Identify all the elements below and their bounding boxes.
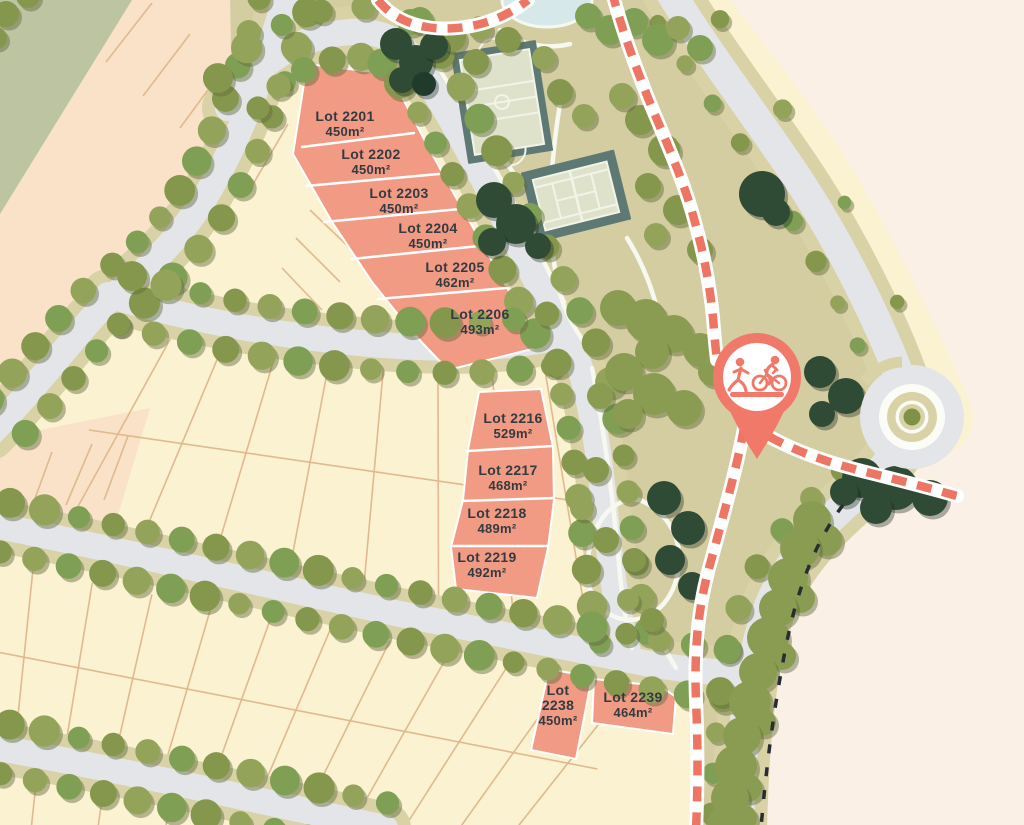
lot-label: Lot 2206 — [450, 306, 509, 322]
lot-label: 450m² — [379, 201, 418, 216]
lot-label: Lot 2204 — [398, 220, 457, 236]
lot-label: 529m² — [493, 426, 532, 441]
lot-label: 492m² — [467, 565, 506, 580]
lot-label: Lot 2218 — [467, 505, 526, 521]
lot-label: 489m² — [477, 521, 516, 536]
lot-label: 450m² — [538, 713, 577, 728]
masterplan-svg: Lot 2201450m²Lot 2202450m²Lot 2203450m²L… — [0, 0, 1024, 825]
lot-label: 450m² — [351, 162, 390, 177]
lot-label: 468m² — [488, 478, 527, 493]
lot-label: Lot — [547, 682, 570, 698]
lot-label: 450m² — [325, 124, 364, 139]
lot-label: 462m² — [435, 275, 474, 290]
lot-label: 2238 — [542, 697, 574, 713]
lot-label: 493m² — [460, 322, 499, 337]
lot-label: Lot 2201 — [315, 108, 374, 124]
trail-ground-bar — [730, 392, 784, 397]
lot-label: 464m² — [613, 705, 652, 720]
lot-label: Lot 2217 — [478, 462, 537, 478]
lot-label: Lot 2216 — [483, 410, 542, 426]
lot-label: Lot 2239 — [603, 689, 662, 705]
lot-label: Lot 2205 — [425, 259, 484, 275]
lot-label: Lot 2202 — [341, 146, 400, 162]
lot-label: 450m² — [408, 236, 447, 251]
lot-label: Lot 2203 — [369, 185, 428, 201]
masterplan-map: Lot 2201450m²Lot 2202450m²Lot 2203450m²L… — [0, 0, 1024, 825]
lot-label: Lot 2219 — [457, 549, 516, 565]
